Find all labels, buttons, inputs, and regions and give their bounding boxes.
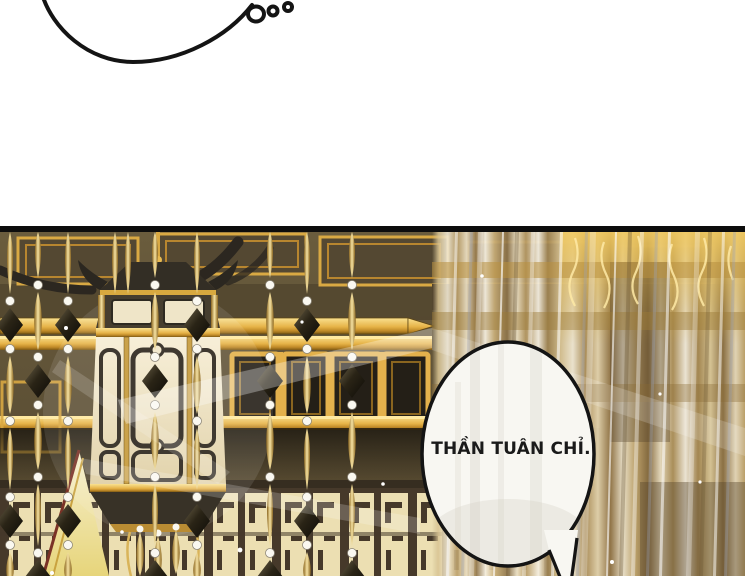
speech-bubble-text: THẦN TUÂN CHỈ. (420, 434, 602, 464)
thought-bubble-dot (269, 7, 278, 16)
thought-bubble-arc (42, 0, 252, 62)
comic-panel (0, 226, 745, 576)
thought-bubble-loop (248, 7, 264, 22)
thought-bubble-dot (284, 3, 292, 11)
comic-page: THẦN TUÂN CHỈ. (0, 0, 745, 576)
thought-bubble-trail (0, 0, 745, 226)
panel-top-border (0, 226, 745, 232)
